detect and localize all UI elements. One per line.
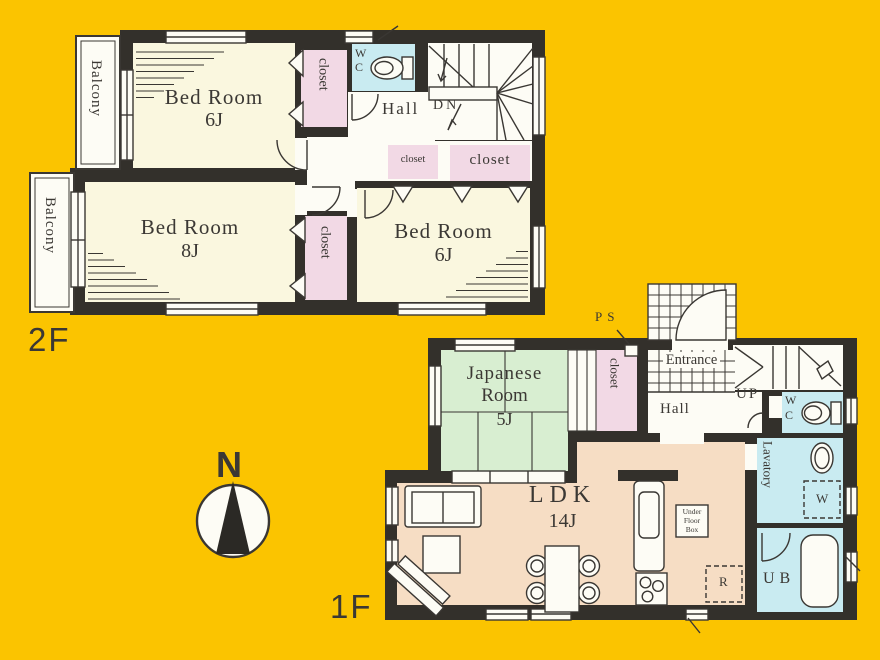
entrance-label: Entrance [648, 353, 735, 368]
balcony-bottom-label: Balcony [41, 197, 57, 254]
pipe-space-label: PS [595, 310, 619, 324]
bedroom-8j-name: Bed Room [85, 216, 295, 238]
fusuma-strip [568, 350, 596, 431]
stairs-2f [428, 43, 532, 140]
floor2-label: 2F [28, 323, 71, 358]
hall-1f-label: Hall [660, 402, 690, 418]
closet-top-label: closet [315, 58, 330, 91]
compass-icon [197, 481, 269, 557]
japanese-room-size: 5J [441, 410, 568, 429]
bedroom-6j-a-name: Bed Room [133, 86, 295, 108]
lavatory-label: Lavatory [761, 441, 775, 488]
balcony-top-label: Balcony [87, 60, 103, 117]
wc-2f-label-c: C [355, 61, 363, 74]
bedroom-6j-a-size: 6J [133, 110, 295, 131]
japanese-room-name-2: Room [441, 386, 568, 406]
hall-2f-label: Hall [382, 100, 419, 118]
stairs-1f [733, 345, 843, 390]
japanese-room-name-1: Japanese [441, 364, 568, 384]
down-label: DN [433, 99, 459, 114]
wc-1f-label-w: W [785, 394, 796, 407]
closet-1f-label: closet [608, 358, 622, 388]
bedroom-6j-b-size: 6J [357, 245, 530, 266]
floor-plan-canvas: Balcony Balcony Bed Room 6J closet W C H… [0, 0, 880, 660]
compass-north-label: N [216, 446, 242, 484]
washer-label: W [816, 492, 828, 506]
wc-1f-label-c: C [785, 409, 793, 422]
bedroom-8j-size: 8J [85, 241, 295, 262]
fridge-label: R [719, 575, 728, 589]
floor1-label: 1F [330, 590, 373, 625]
ldk-name: LDK [505, 483, 620, 508]
wc-2f-label-w: W [355, 47, 366, 60]
under-floor-box-2: Floor [676, 517, 708, 525]
under-floor-box-3: Box [676, 526, 708, 534]
closet-mid-label: closet [317, 226, 332, 259]
unit-bath-label: UB [763, 571, 795, 588]
under-floor-box-1: Under [676, 508, 708, 516]
ldk-size: 14J [505, 511, 620, 532]
closet-hall-small-label: closet [388, 154, 438, 165]
bedroom-6j-b-name: Bed Room [357, 220, 530, 242]
up-label: UP [736, 387, 759, 403]
closet-hall-large-label: closet [450, 153, 530, 169]
